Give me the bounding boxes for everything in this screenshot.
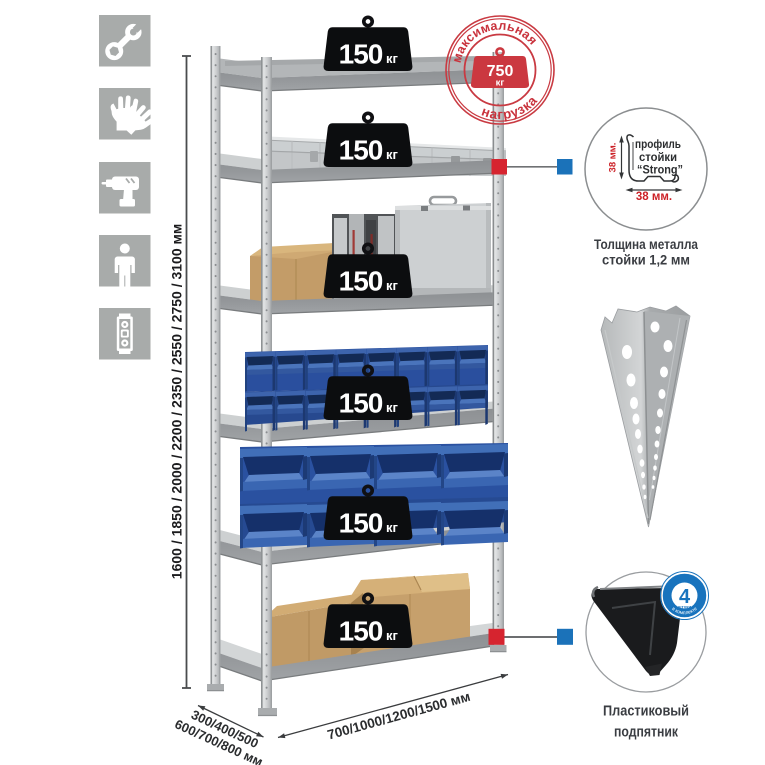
svg-text:Пластиковый: Пластиковый: [603, 703, 689, 720]
svg-text:Толщина металла: Толщина металла: [594, 236, 698, 252]
svg-text:кг: кг: [496, 78, 505, 89]
svg-text:штуки: штуки: [678, 605, 692, 610]
svg-text:подпятник: подпятник: [614, 724, 678, 741]
svg-text:“Strong”: “Strong”: [637, 165, 683, 177]
svg-text:38 мм.: 38 мм.: [636, 191, 672, 203]
svg-text:стойки 1,2 мм: стойки 1,2 мм: [602, 252, 690, 268]
svg-text:профиль: профиль: [635, 139, 681, 151]
svg-text:1600 / 1850 / 2000 / 2200 / 23: 1600 / 1850 / 2000 / 2200 / 2350 / 2550 …: [169, 224, 185, 579]
svg-text:38 мм.: 38 мм.: [608, 143, 619, 173]
svg-text:стойки: стойки: [639, 152, 677, 164]
